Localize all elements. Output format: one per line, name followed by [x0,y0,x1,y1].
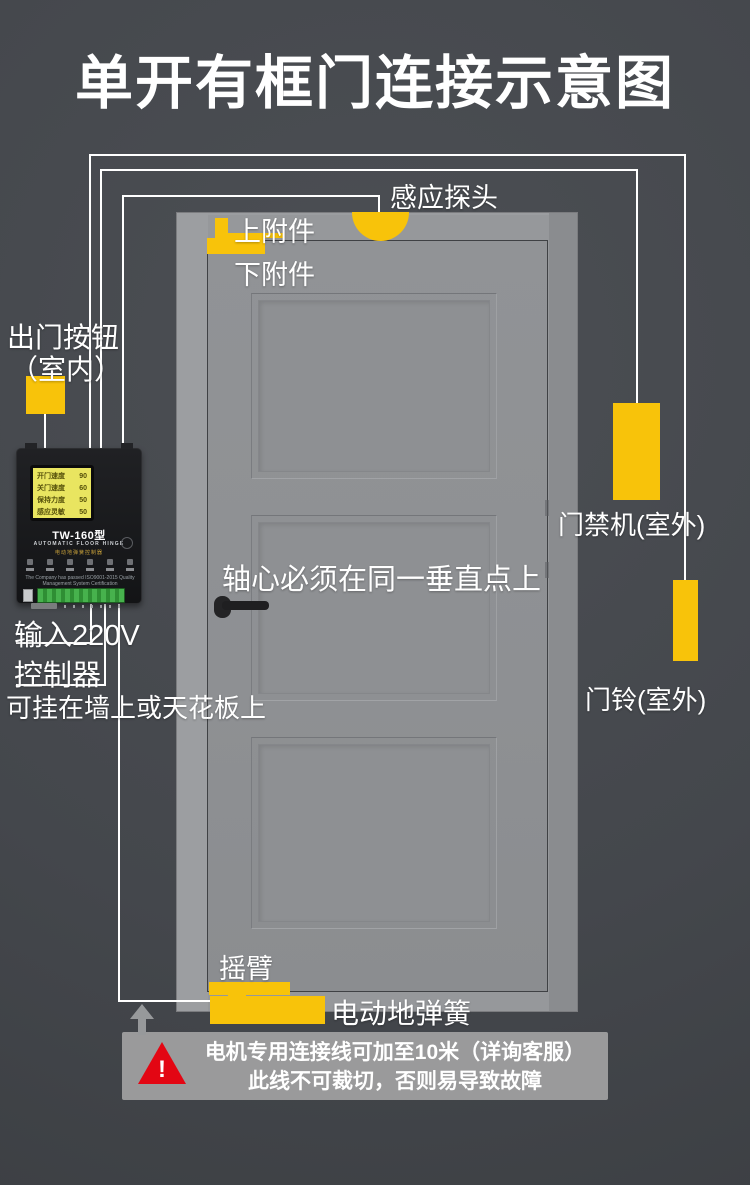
label-doorbell: 门铃(室外) [585,680,706,717]
door-panel-top [251,293,497,479]
lcd-setting-name: 感应灵敏 [37,507,65,519]
door-panel-middle-face [258,522,490,694]
lcd-setting-value: 60 [79,483,87,495]
wire-access-vertical [100,169,102,450]
lcd-row: 保持力度 50 [37,495,87,507]
wire-sensor-horizontal [122,195,380,197]
connection-diagram-page: 单开有框门连接示意图 感应探头 上附件 下附件 出门按钮 （室内） [0,0,750,1185]
lcd-setting-value: 90 [79,471,87,483]
led-indicator [67,559,73,565]
controller-certification-text: The Company has passed ISO9001-2015 Qual… [23,575,137,587]
wire-floor-spring-horizontal [118,1000,214,1002]
warning-exclamation: ! [138,1056,186,1084]
arrow-up-icon [130,1004,154,1019]
controller-product-name: 电动地弹簧控制器 [17,549,141,556]
led-indicator [27,559,33,565]
label-floor-spring: 电动地弹簧 [331,992,471,1032]
controller-mount-ear-right [121,443,133,449]
label-access-control: 门禁机(室外) [558,505,705,542]
page-title: 单开有框门连接示意图 [0,36,750,120]
access-control-icon [613,403,660,500]
wire-access-horizontal [100,169,638,171]
controller-buzzer-icon [121,537,133,549]
lcd-setting-name: 关门速度 [37,483,65,495]
lcd-setting-value: 50 [79,495,87,507]
led-indicator [107,559,113,565]
hinge-mark-upper [545,500,549,516]
controller-connector [23,589,33,602]
doorbell-icon [673,580,698,661]
warning-text: 电机专用连接线可加至10米（详询客服） 此线不可裁切，否则易导致故障 [188,1038,602,1096]
door-panel-bottom [251,737,497,929]
arrow-up-stem [138,1018,146,1035]
lcd-row: 开门速度 90 [37,471,87,483]
wire-floor-spring-vertical [118,604,120,1002]
wire-doorbell-vertical [89,154,91,450]
door-handle-icon [222,601,269,610]
hinge-mark-lower [545,562,549,578]
label-lower-attachment: 下附件 [234,253,315,292]
lcd-row: 感应灵敏 50 [37,507,87,519]
wire-access-drop [636,169,638,403]
controller-foot [31,603,57,609]
controller-mount-ear-left [25,443,37,449]
label-sensor-probe: 感应探头 [390,176,498,215]
door-panel-bottom-face [258,744,490,922]
wire-sensor-drop [378,195,380,213]
label-upper-attachment: 上附件 [234,210,315,249]
label-axis-note: 轴心必须在同一垂直点上 [222,556,541,598]
label-controller-mount-note: 可挂在墙上或天花板上 [6,688,266,725]
lcd-setting-name: 保持力度 [37,495,65,507]
warning-box: ! 电机专用连接线可加至10米（详询客服） 此线不可裁切，否则易导致故障 [122,1032,608,1100]
warning-line2: 此线不可裁切，否则易导致故障 [188,1067,602,1096]
wire-sensor-vertical [122,195,124,450]
wire-doorbell-horizontal [89,154,686,156]
door-panel-top-face [258,300,490,472]
label-rocker-arm: 摇臂 [219,947,273,986]
label-power-input: 输入220V [14,612,140,654]
led-indicator [87,559,93,565]
floor-spring-icon [210,996,325,1024]
warning-line1: 电机专用连接线可加至10米（详询客服） [188,1038,602,1067]
controller-led-row [27,559,133,565]
lcd-setting-value: 50 [79,507,87,519]
label-exit-button-line2: （室内） [10,348,122,388]
led-indicator [127,559,133,565]
controller-terminal-block [37,588,125,603]
wire-exit-button [44,414,46,450]
led-indicator [47,559,53,565]
lcd-setting-name: 开门速度 [37,471,65,483]
door-panel-middle [251,515,497,701]
controller-lcd: 开门速度 90 关门速度 60 保持力度 50 感应灵敏 50 [30,465,94,521]
lcd-row: 关门速度 60 [37,483,87,495]
controller-device: 开门速度 90 关门速度 60 保持力度 50 感应灵敏 50 TW-160型 … [16,448,142,604]
